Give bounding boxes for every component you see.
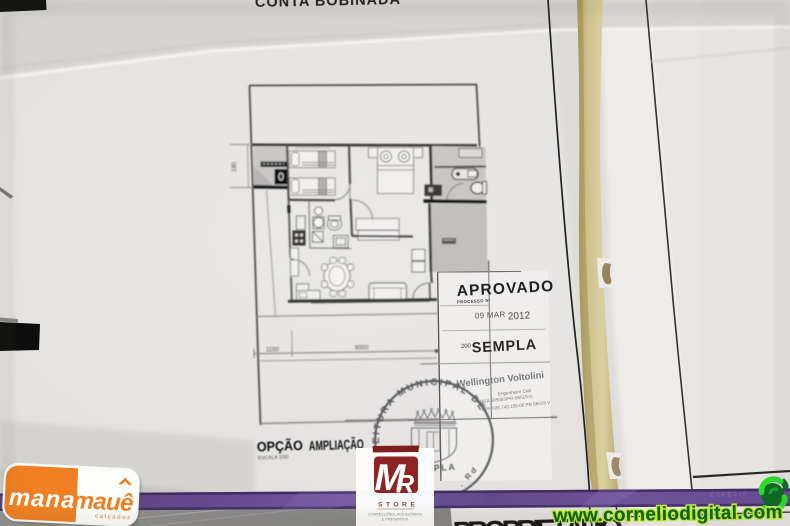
svg-text:ESPECIF: ESPECIF: [710, 491, 749, 499]
svg-text:09 MAR: 09 MAR: [475, 310, 506, 321]
svg-text:6000: 6000: [355, 346, 369, 352]
svg-text:SEMPLA: SEMPLA: [471, 337, 537, 356]
svg-text:200: 200: [461, 343, 472, 350]
svg-text:180: 180: [232, 161, 238, 172]
svg-text:1150: 1150: [266, 348, 280, 354]
svg-text:2012: 2012: [508, 310, 531, 322]
svg-text:ESCALA 1/50: ESCALA 1/50: [258, 454, 289, 461]
svg-text:STORE: STORE: [378, 502, 418, 509]
svg-text:mana: mana: [8, 484, 75, 514]
svg-text:R: R: [396, 471, 414, 499]
svg-text:AMPLIAÇÃO: AMPLIAÇÃO: [309, 437, 364, 454]
svg-text:OPÇÃO: OPÇÃO: [257, 438, 303, 455]
